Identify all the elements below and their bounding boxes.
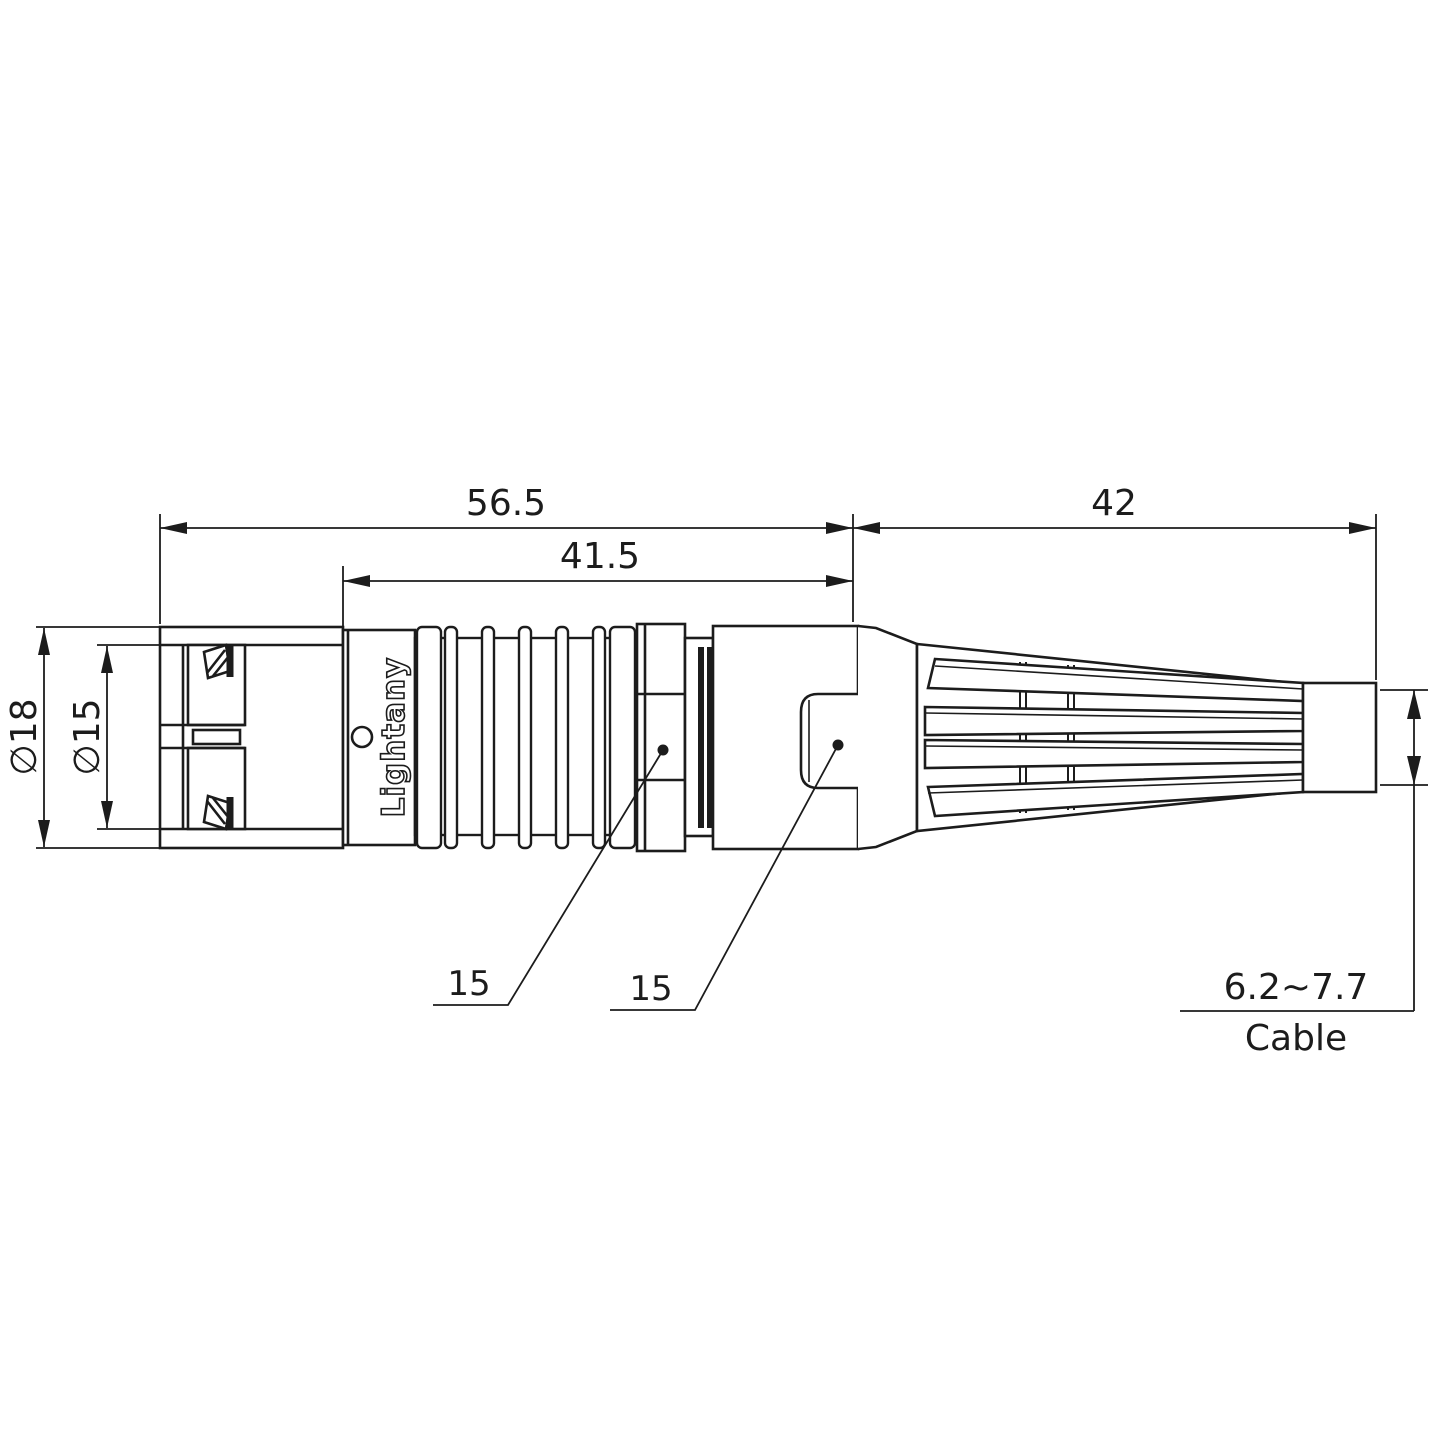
rib-thin [556,627,568,848]
arrowhead [38,628,50,655]
rib-thin [482,627,494,848]
bend-relief-boot [858,626,1376,849]
dim-inner-diameter: ∅15 [67,645,160,829]
cable-word-label: Cable [1245,1018,1347,1059]
arrowhead [343,575,370,587]
ribbed-section [415,627,637,848]
cable-range-label: 6.2~7.7 [1224,967,1369,1008]
arrowhead [1407,690,1421,719]
dim-total-length: 56.5 [160,483,853,624]
front-shell [160,627,343,848]
boot-fin [925,707,1303,735]
cable-exit-cylinder [1303,683,1376,792]
rear-body [713,626,858,849]
arrowhead [826,575,853,587]
arrowhead [1407,756,1421,785]
arrowhead [101,801,113,828]
arrowhead [826,522,853,534]
boot-fin [925,740,1303,768]
part-engraving-text: Lightany [376,657,412,818]
step-ring [685,638,713,836]
rib-thin [593,627,605,848]
arrowhead [101,646,113,673]
dim-front-length-label: 41.5 [560,536,640,577]
arrowhead [1349,522,1376,534]
connector-dimension-drawing: Lightany Lightany [0,0,1440,1440]
coupling-nut [637,624,685,851]
boot-collar [858,626,917,849]
dim-inner-diameter-label: ∅15 [67,698,108,775]
technical-drawing-page: Lightany Lightany [0,0,1440,1440]
dim-total-length-label: 56.5 [466,483,546,524]
rib-wide-rear [610,627,635,848]
arrowhead [160,522,187,534]
callout-body-label: 15 [629,969,672,1009]
callout-nut-label: 15 [447,964,490,1004]
slot-inner [193,730,240,744]
rib-wide-front [417,627,441,848]
arrowhead [38,820,50,847]
dim-outer-diameter-label: ∅18 [4,698,45,775]
dim-boot-length-label: 42 [1091,483,1137,524]
rib-thin [519,627,531,848]
arrowhead [853,522,880,534]
rib-thin [445,627,457,848]
dim-front-length: 41.5 [343,536,853,628]
